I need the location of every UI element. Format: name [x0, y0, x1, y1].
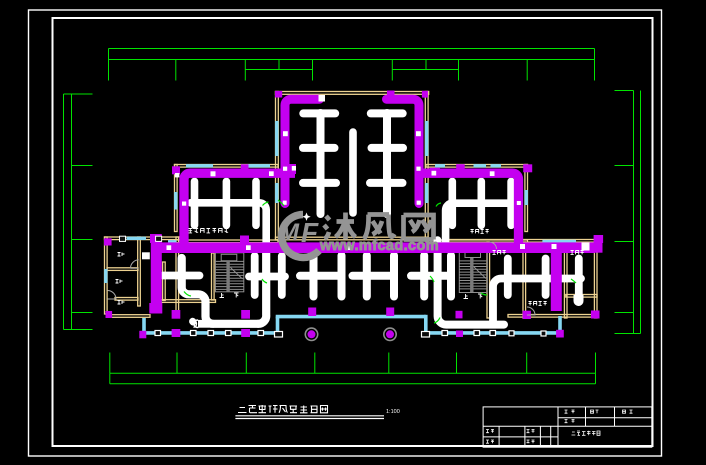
- svg-text:www.mfcad.com: www.mfcad.com: [319, 238, 439, 254]
- svg-text:1:100: 1:100: [386, 409, 400, 415]
- svg-text:F: F: [301, 217, 319, 248]
- svg-text:M: M: [279, 219, 300, 246]
